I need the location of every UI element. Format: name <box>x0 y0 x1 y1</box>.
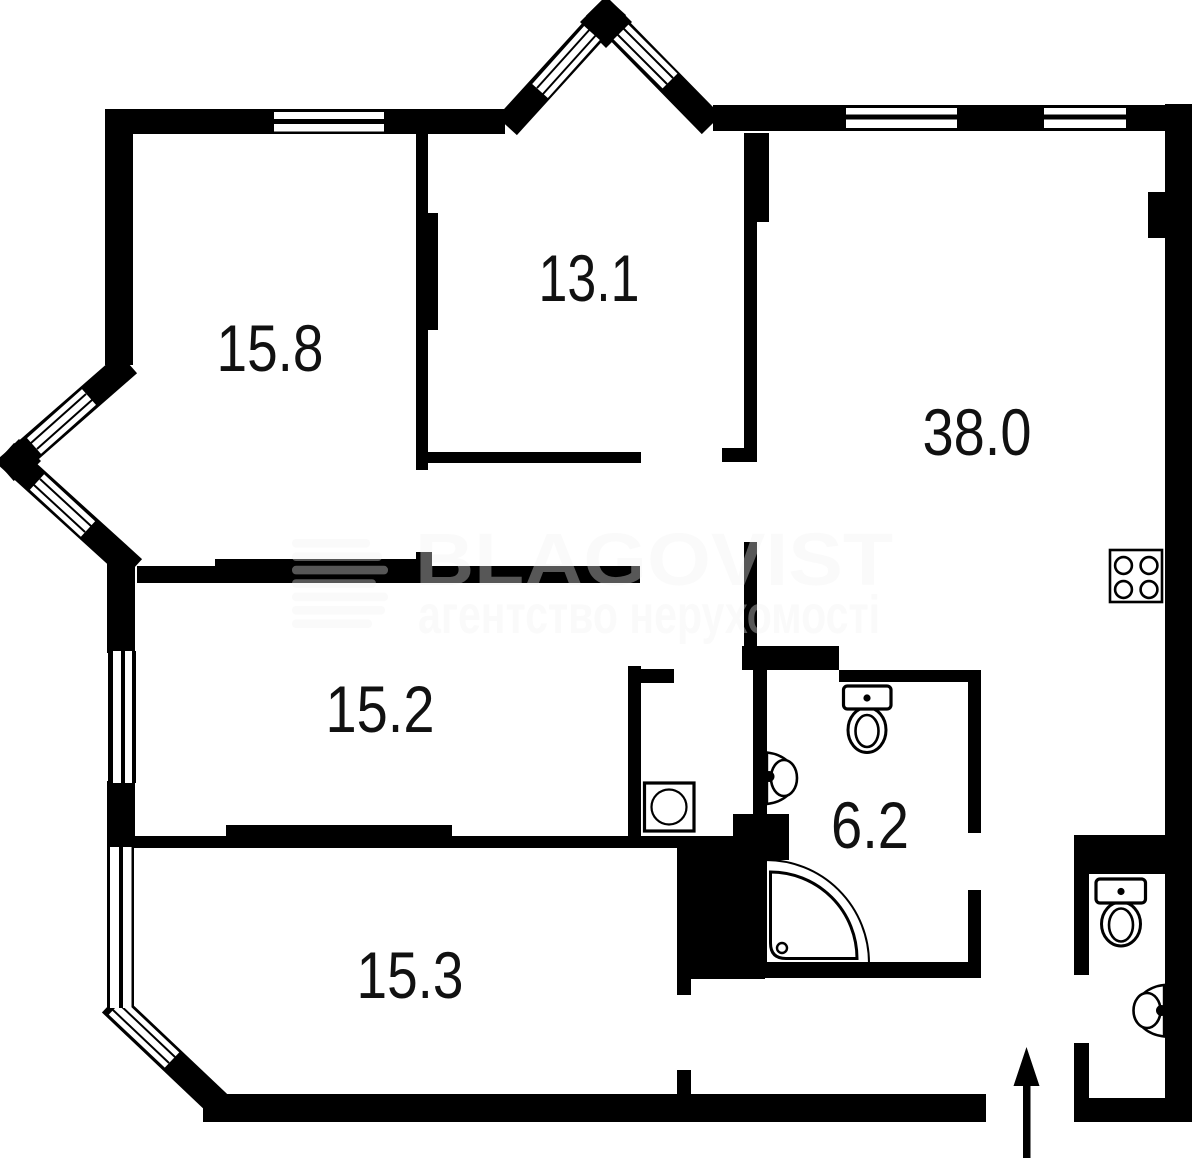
svg-text:13.1: 13.1 <box>539 241 640 315</box>
svg-text:6.2: 6.2 <box>831 788 909 862</box>
svg-text:38.0: 38.0 <box>923 395 1032 469</box>
svg-text:15.8: 15.8 <box>217 311 324 385</box>
svg-text:15.2: 15.2 <box>326 672 435 746</box>
svg-text:15.3: 15.3 <box>357 938 464 1012</box>
svg-text:агентство нерухомості: агентство нерухомості <box>418 585 880 645</box>
